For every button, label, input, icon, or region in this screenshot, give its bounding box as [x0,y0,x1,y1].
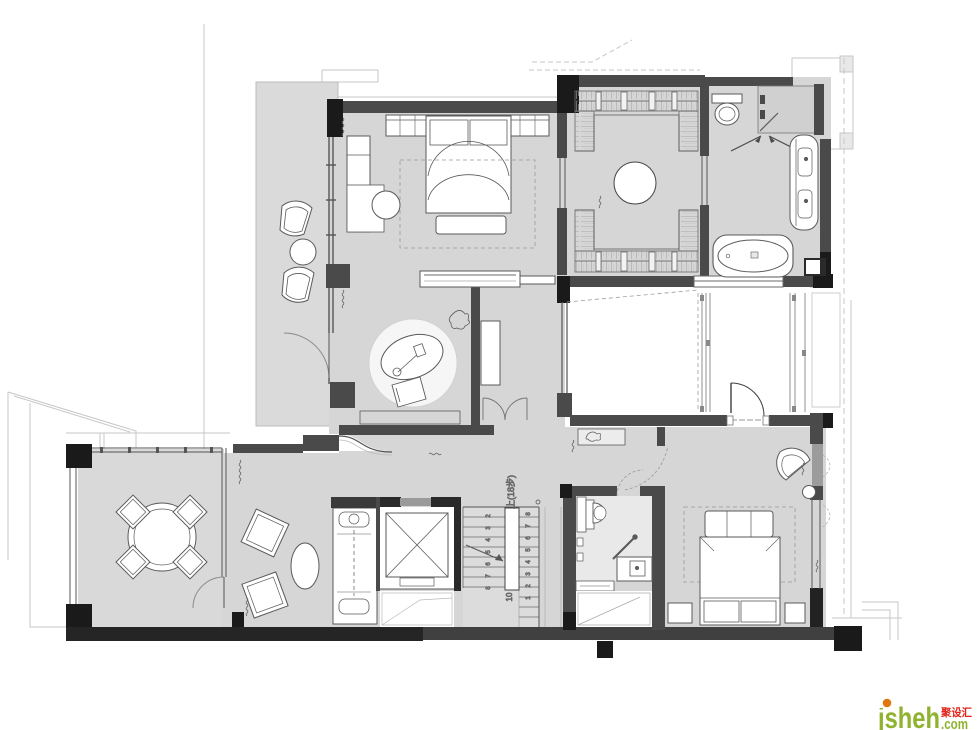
svg-text:10: 10 [505,592,514,601]
svg-text:聚设汇: 聚设汇 [940,706,972,719]
svg-text:上(18步): 上(18步) [506,475,516,509]
